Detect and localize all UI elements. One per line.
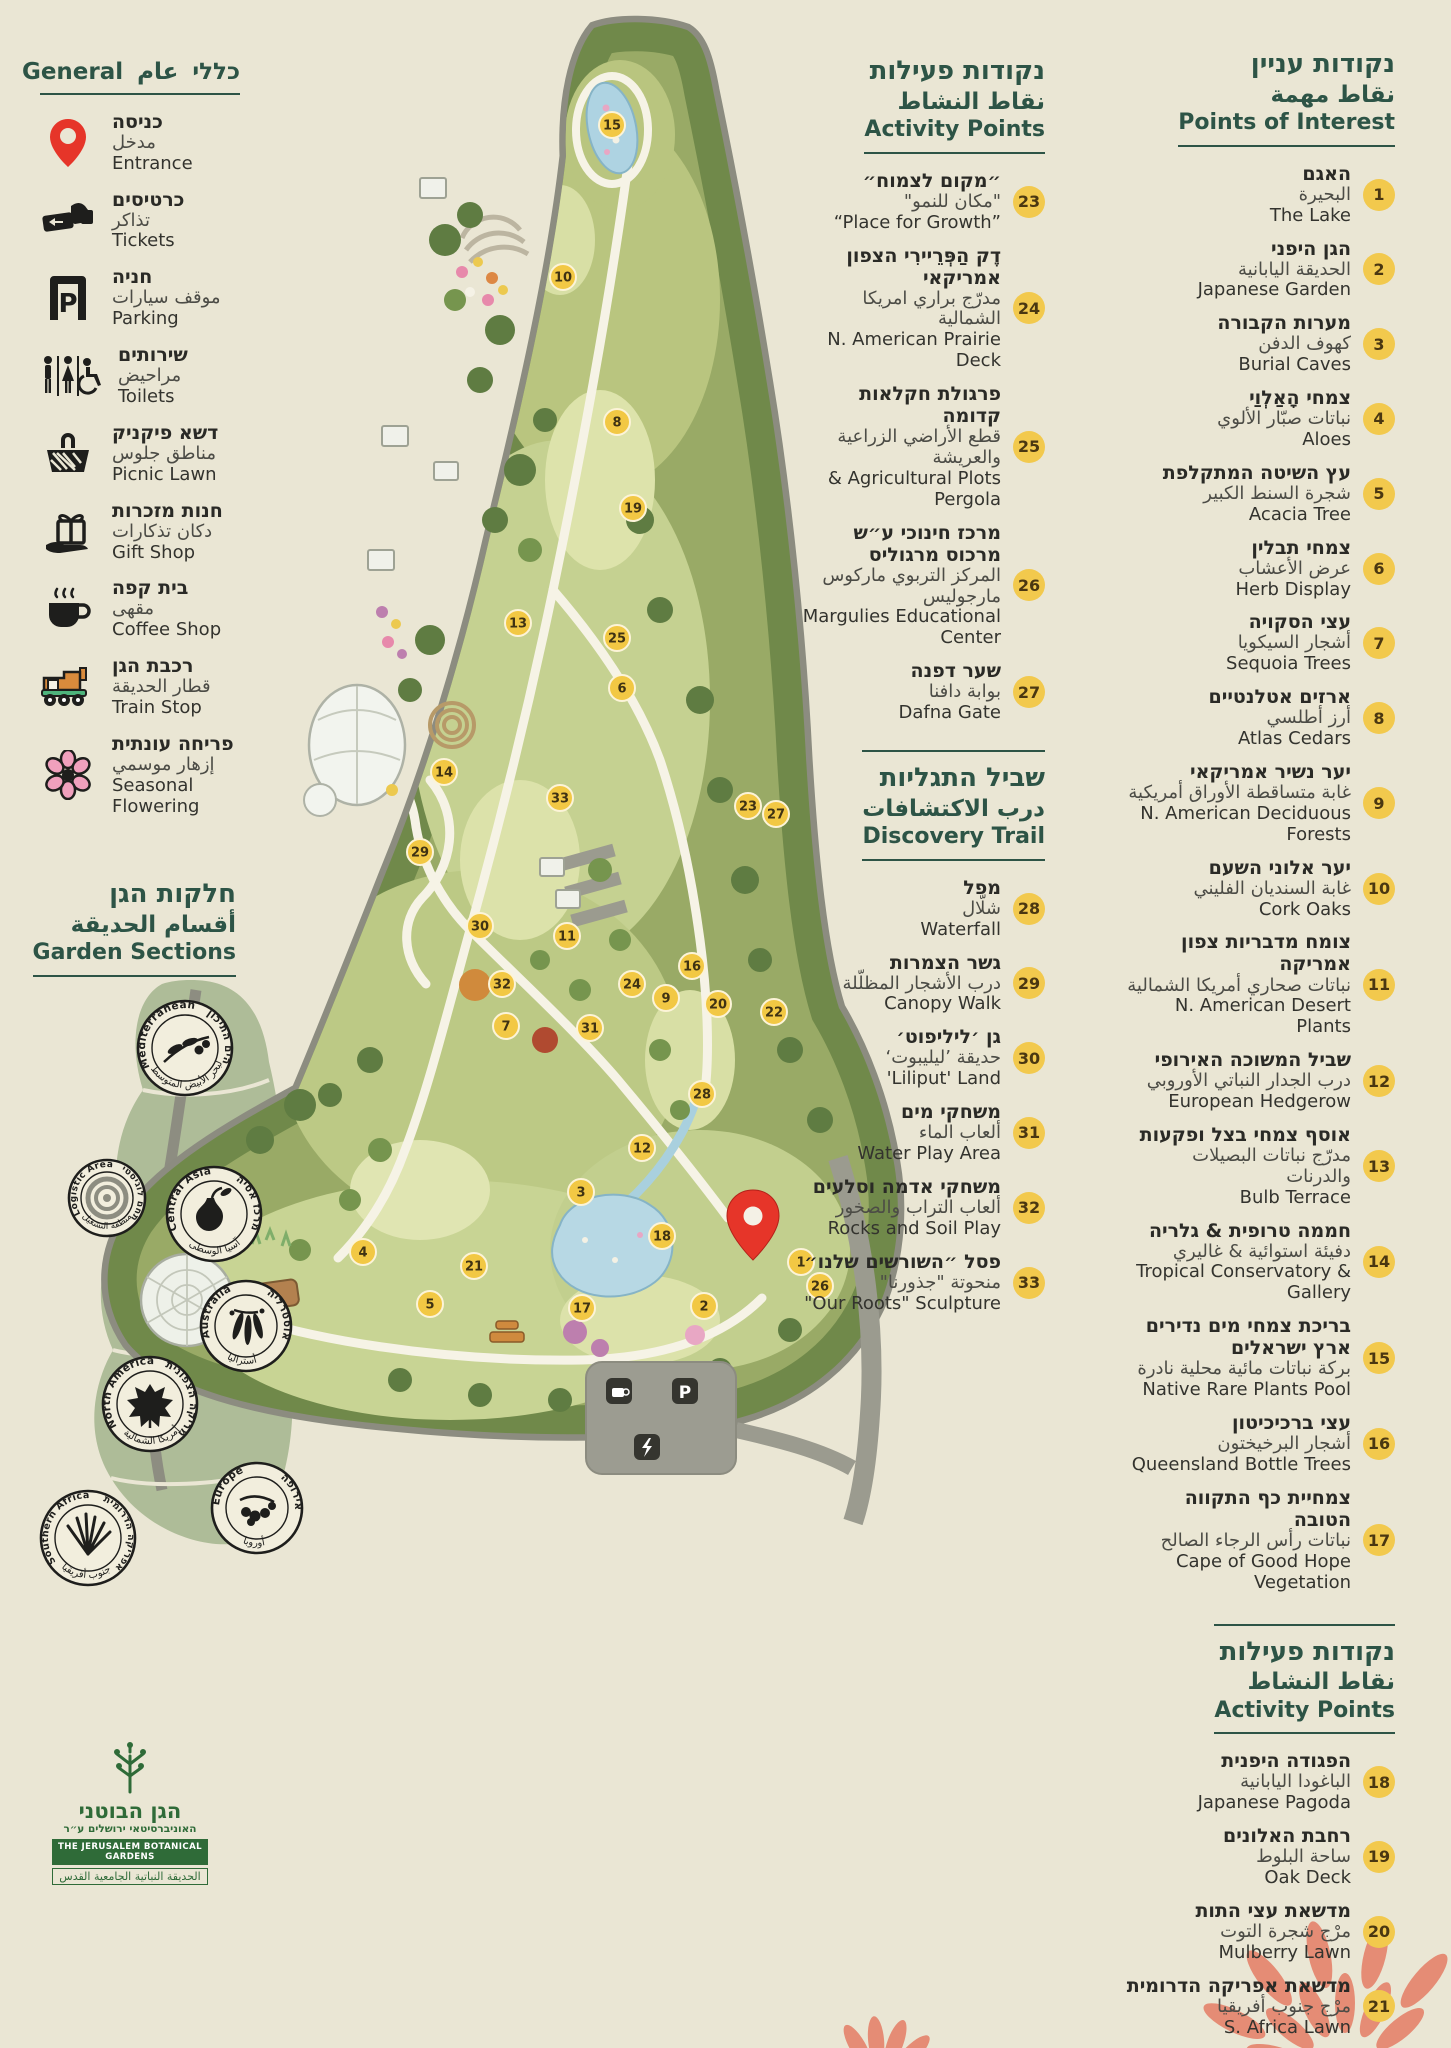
label-arabic: مدرّج نباتات البصيلات والدرنات	[1125, 1146, 1351, 1188]
label-hebrew: חניה	[112, 266, 221, 288]
label-english: N. American Prairie Deck	[795, 330, 1001, 372]
legend-item-text: פרגולת חקלאות קדומה قطع الأراضي الزراعية…	[795, 383, 1001, 511]
label-english: & Agricultural Plots Pergola	[795, 469, 1001, 511]
legend-item: אוסף צמחי בצל ופקעות مدرّج نباتات البصيل…	[1125, 1124, 1395, 1209]
map-marker-number: 11	[558, 930, 576, 945]
label-english: Toilets	[118, 387, 188, 408]
legend-item: צמחי תבלין عرض الأعشاب Herb Display6	[1125, 537, 1395, 601]
label-arabic: دكان تذكارات	[112, 522, 223, 543]
legend-item-text: צמחיית כף התקווה הטובה نباتات رأس الرجاء…	[1125, 1487, 1351, 1594]
label-hebrew: מערות הקבורה	[1217, 312, 1351, 334]
map-marker-number: 27	[767, 808, 785, 823]
item-number-badge: 27	[1013, 676, 1045, 708]
item-number-badge: 18	[1363, 1766, 1395, 1798]
label-arabic: مناطق جلوس	[112, 444, 218, 465]
item-number-badge: 15	[1363, 1342, 1395, 1374]
header-arabic: أقسام الحديقة	[33, 911, 236, 940]
label-arabic: مدخل	[112, 133, 193, 154]
legend-item: מערות הקבורה كهوف الدفن Burial Caves3	[1125, 312, 1395, 376]
section-badge-central-asia: Central Asia מרכז אסיה آسيا الوسطى	[165, 1165, 263, 1261]
label-arabic: المركز التربوي ماركوس مارجوليس	[795, 566, 1001, 608]
legend-item-text: כרטיסים تذاكر Tickets	[112, 189, 184, 253]
legend-item-text: רחבת האלונים ساحة البلوط Oak Deck	[1223, 1825, 1351, 1889]
gift-shop-icon	[40, 509, 96, 555]
label-english: Parking	[112, 309, 221, 330]
legend-item-text: מרכז חינוכי ע״ש מרכוס מרגוליס المركز الت…	[795, 522, 1001, 650]
label-english: Japanese Garden	[1198, 280, 1351, 301]
label-english: Picnic Lawn	[112, 465, 218, 486]
label-arabic: غابة السنديان الفليني	[1193, 879, 1351, 900]
item-number-badge: 7	[1363, 627, 1395, 659]
label-hebrew: בריכת צמחי מים נדירים ארץ ישראלים	[1125, 1315, 1351, 1359]
label-english: Atlas Cedars	[1209, 729, 1351, 750]
label-english: Water Play Area	[857, 1144, 1001, 1165]
label-hebrew: משחקי מים	[857, 1101, 1001, 1123]
entrance-pin-icon	[40, 117, 96, 169]
legend-item: צמחי הָאַלְוַי نباتات صبّار الألوي Aloes…	[1125, 387, 1395, 451]
label-hebrew: חממה טרופית & גלריה	[1125, 1220, 1351, 1242]
legend-item-text: מפל شلّال Waterfall	[920, 877, 1001, 941]
label-english: Cork Oaks	[1193, 900, 1351, 921]
header-hebrew: נקודות פעילות	[1214, 1636, 1395, 1669]
label-arabic: أشجار البرخيختون	[1132, 1434, 1351, 1455]
label-hebrew: עץ השיטה המתקלפת	[1163, 462, 1351, 484]
label-arabic: درب الأشجار المظلّلة	[843, 974, 1001, 995]
svg-text:P: P	[679, 1383, 691, 1403]
legend-item-text: פסל ״השורשים שלנו״ منحوتة "جذورنا" "Our …	[804, 1251, 1001, 1315]
label-hebrew: שער דפנה	[899, 660, 1002, 682]
map-marker-number: 12	[633, 1142, 651, 1157]
legend-item-text: יער אלוני השעם غابة السنديان الفليني Cor…	[1193, 857, 1351, 921]
label-arabic: ألعاب الماء	[857, 1123, 1001, 1144]
legend-item-text: הפגודה היפנית الباغودا اليابانية Japanes…	[1198, 1750, 1351, 1814]
legend-item-text: חניה موقف سيارات Parking	[112, 266, 221, 330]
label-english: Cape of Good Hope Vegetation	[1125, 1552, 1351, 1594]
item-number-badge: 6	[1363, 553, 1395, 585]
label-arabic: إزهار موسمي	[112, 755, 240, 776]
label-hebrew: עצי הסקויה	[1226, 611, 1351, 633]
label-arabic: الباغودا اليابانية	[1198, 1772, 1351, 1793]
legend-item: רחבת האלונים ساحة البلوط Oak Deck19	[1125, 1825, 1395, 1889]
item-number-badge: 23	[1013, 186, 1045, 218]
header-hebrew: נקודות עניין	[1178, 48, 1395, 81]
label-arabic: البحيرة	[1270, 185, 1351, 206]
train-icon	[40, 666, 96, 708]
section-badge-europe: Europe אירופה أوروبا	[210, 1463, 304, 1553]
activity-points-column: נקודות פעילות نقاط النشاط Activity Point…	[795, 55, 1045, 1325]
item-number-badge: 33	[1013, 1267, 1045, 1299]
legend-item: פרגולת חקלאות קדומה قطع الأراضي الزراعية…	[795, 383, 1045, 511]
activity-points-right-header: נקודות פעילות نقاط النشاط Activity Point…	[1214, 1624, 1395, 1735]
label-english: N. American Deciduous Forests	[1125, 804, 1351, 846]
label-english: Queensland Bottle Trees	[1132, 1455, 1351, 1476]
label-english: Sequoia Trees	[1226, 654, 1351, 675]
tickets-icon	[40, 200, 96, 240]
legend-item: שביל המשוכה האירופי درب الجدار النباتي ا…	[1125, 1049, 1395, 1113]
label-english: “Place for Growth”	[834, 213, 1001, 234]
item-number-badge: 24	[1013, 292, 1045, 324]
map-marker-number: 8	[612, 416, 621, 431]
map-marker-number: 30	[471, 920, 489, 935]
map-marker-number: 14	[435, 766, 453, 781]
map-marker-number: 10	[554, 271, 572, 286]
map-marker-number: 6	[617, 682, 626, 697]
label-hebrew: מפל	[920, 877, 1001, 899]
label-english: Tickets	[112, 231, 184, 252]
header-english: Activity Points	[1214, 1697, 1395, 1725]
garden-map-page: P 12345678910111213141516171819202122232…	[0, 0, 1451, 2048]
map-marker-number: 9	[661, 992, 670, 1007]
legend-item: משחקי מים ألعاب الماء Water Play Area31	[795, 1101, 1045, 1165]
label-arabic: ألعاب التراب والصخور	[813, 1198, 1001, 1219]
label-hebrew: מדשאת עצי התות	[1195, 1900, 1351, 1922]
legend-item: האגם البحيرة The Lake1	[1125, 163, 1395, 227]
logo-title-arabic: الحديقة النباتية الجامعية القدس	[52, 1868, 208, 1885]
label-english: Japanese Pagoda	[1198, 1793, 1351, 1814]
logo-subtitle-hebrew: האוניברסיטאי ירושלים ע״ר	[52, 1823, 208, 1836]
legend-item: צומח מדבריות צפון אמריקה نباتات صحاري أم…	[1125, 931, 1395, 1038]
label-arabic: موقف سيارات	[112, 288, 221, 309]
legend-item-text: חממה טרופית & גלריה دفيئة استوائية & غال…	[1125, 1220, 1351, 1305]
header-arabic: نقاط مهمة	[1178, 81, 1395, 110]
map-marker-number: 20	[709, 998, 727, 1013]
label-english: Herb Display	[1235, 580, 1351, 601]
map-marker-number: 25	[608, 632, 626, 647]
label-arabic: شجرة السنط الكبير	[1163, 484, 1351, 505]
legend-item-text: חנות מזכרות دكان تذكارات Gift Shop	[112, 500, 223, 564]
tropical-conservatory	[304, 685, 405, 816]
parking-area: P	[586, 1362, 736, 1474]
label-english: N. American Desert Plants	[1125, 996, 1351, 1038]
label-hebrew: שביל המשוכה האירופי	[1147, 1049, 1351, 1071]
map-marker-number: 22	[765, 1006, 783, 1021]
label-english: Tropical Conservatory & Gallery	[1125, 1262, 1351, 1304]
map-marker-number: 16	[683, 960, 701, 975]
general-legend-item: פריחה עונתית إزهار موسمي Seasonal Flower…	[40, 733, 240, 818]
map-marker-number: 31	[581, 1022, 599, 1037]
item-number-badge: 9	[1363, 787, 1395, 819]
item-number-badge: 25	[1013, 431, 1045, 463]
item-number-badge: 21	[1363, 1990, 1395, 2022]
label-hebrew: משחקי אדמה וסלעים	[813, 1176, 1001, 1198]
label-english: European Hedgerow	[1147, 1092, 1351, 1113]
legend-item: גשר הצמרות درب الأشجار المظلّلة Canopy W…	[795, 952, 1045, 1016]
label-english: Entrance	[112, 154, 193, 175]
label-hebrew: צמחי הָאַלְוַי	[1217, 387, 1351, 409]
label-hebrew: גן ׳ליליפוט׳	[886, 1026, 1002, 1048]
legend-item: פסל ״השורשים שלנו״ منحوتة "جذورنا" "Our …	[795, 1251, 1045, 1315]
label-hebrew: דשא פיקניק	[112, 422, 218, 444]
label-hebrew: גשר הצמרות	[843, 952, 1001, 974]
general-legend-header: כללי عام General	[40, 58, 240, 95]
discovery-trail-header: שביל התגליות درب الاكتشافات Discovery Tr…	[862, 750, 1045, 861]
label-english: Aloes	[1217, 430, 1351, 451]
label-hebrew: כניסה	[112, 111, 193, 133]
legend-item: מדשאת אפריקה הדרומית مرْج جنوب أفريقيا S…	[1125, 1975, 1395, 2039]
header-hebrew: חלקות הגן	[33, 878, 236, 911]
map-marker-number: 19	[624, 502, 642, 517]
label-english: Burial Caves	[1217, 355, 1351, 376]
general-legend-item: דשא פיקניק مناطق جلوس Picnic Lawn	[40, 422, 240, 486]
label-hebrew: שירותים	[118, 344, 188, 366]
label-hebrew: האגם	[1270, 163, 1351, 185]
label-hebrew: רכבת הגן	[112, 655, 211, 677]
label-hebrew: ״מקום לצמוח״	[834, 170, 1001, 192]
map-marker-number: 21	[465, 1260, 483, 1275]
header-arabic: عام	[137, 58, 178, 87]
label-arabic: تذاكر	[112, 211, 184, 232]
legend-item-text: צמחי תבלין عرض الأعشاب Herb Display	[1235, 537, 1351, 601]
item-number-badge: 32	[1013, 1192, 1045, 1224]
legend-item: משחקי אדמה וסלעים ألعاب التراب والصخور R…	[795, 1176, 1045, 1240]
legend-item: ארזים אטלנטיים أرز أطلسي Atlas Cedars8	[1125, 686, 1395, 750]
label-arabic: قطع الأراضي الزراعية والعريشة	[795, 427, 1001, 469]
legend-item: יער נשיר אמריקאי غابة متساقطة الأوراق أم…	[1125, 761, 1395, 846]
label-hebrew: הפגודה היפנית	[1198, 1750, 1351, 1772]
legend-item: ״מקום לצמוח״ "مكان للنمو" “Place for Gro…	[795, 170, 1045, 234]
label-hebrew: פרגולת חקלאות קדומה	[795, 383, 1001, 427]
legend-item-text: שביל המשוכה האירופי درب الجدار النباتي ا…	[1147, 1049, 1351, 1113]
legend-item-text: שער דפנה بوابة دافنا Dafna Gate	[899, 660, 1002, 724]
map-marker-number: 3	[576, 1186, 585, 1201]
label-english: Gift Shop	[112, 543, 223, 564]
label-english: Rocks and Soil Play	[813, 1219, 1001, 1240]
legend-item: מפל شلّال Waterfall28	[795, 877, 1045, 941]
label-arabic: بركة نباتات مائية محلية نادرة	[1125, 1359, 1351, 1380]
points-of-interest-header: נקודות עניין نقاط مهمة Points of Interes…	[1178, 48, 1395, 147]
item-number-badge: 4	[1363, 403, 1395, 435]
label-english: Oak Deck	[1223, 1868, 1351, 1889]
label-hebrew: צומח מדבריות צפון אמריקה	[1125, 931, 1351, 975]
label-hebrew: דֶק הַפְּרֵיירִי הצפון אמריקאי	[795, 245, 1001, 289]
label-hebrew: כרטיסים	[112, 189, 184, 211]
legend-item: הפגודה היפנית الباغودا اليابانية Japanes…	[1125, 1750, 1395, 1814]
header-hebrew: כללי	[192, 58, 240, 87]
activity-points-header: נקודות פעילות نقاط النشاط Activity Point…	[864, 55, 1045, 154]
map-marker-number: 4	[358, 1246, 367, 1261]
header-hebrew: נקודות פעילות	[864, 55, 1045, 88]
picnic-basket-icon	[40, 432, 96, 476]
label-hebrew: אוסף צמחי בצל ופקעות	[1125, 1124, 1351, 1146]
map-marker-number: 5	[425, 1298, 434, 1313]
label-hebrew: מדשאת אפריקה הדרומית	[1127, 1975, 1351, 1997]
item-number-badge: 16	[1363, 1428, 1395, 1460]
coffee-map-icon	[606, 1378, 632, 1404]
header-english: Discovery Trail	[862, 823, 1045, 851]
header-english: Points of Interest	[1178, 109, 1395, 137]
general-legend-item: שירותים مراحيض Toilets	[40, 344, 240, 408]
map-marker-number: 13	[509, 617, 527, 632]
map-marker-number: 18	[653, 1230, 671, 1245]
legend-item: גן ׳ליליפוט׳ حديقة ’ليليبوت‘ 'Liliput' L…	[795, 1026, 1045, 1090]
legend-item-text: יער נשיר אמריקאי غابة متساقطة الأوراق أم…	[1125, 761, 1351, 846]
map-marker-number: 32	[493, 978, 511, 993]
label-english: Coffee Shop	[112, 620, 221, 641]
label-arabic: نباتات رأس الرجاء الصالح	[1125, 1531, 1351, 1552]
item-number-badge: 8	[1363, 702, 1395, 734]
legend-item-text: מדשאת אפריקה הדרומית مرْج جنوب أفريقيا S…	[1127, 1975, 1351, 2039]
legend-item-text: עצי ברכיכיטון أشجار البرخيختون Queenslan…	[1132, 1412, 1351, 1476]
label-english: Dafna Gate	[899, 703, 1002, 724]
legend-item: עצי הסקויה أشجار السيكويا Sequoia Trees7	[1125, 611, 1395, 675]
general-legend-item: חנות מזכרות دكان تذكارات Gift Shop	[40, 500, 240, 564]
label-arabic: مرْج شجرة التوت	[1195, 1922, 1351, 1943]
label-hebrew: חנות מזכרות	[112, 500, 223, 522]
item-number-badge: 30	[1013, 1042, 1045, 1074]
legend-item-text: משחקי מים ألعاب الماء Water Play Area	[857, 1101, 1001, 1165]
legend-item: מדשאת עצי התות مرْج شجرة التوت Mulberry …	[1125, 1900, 1395, 1964]
map-marker-number: 2	[699, 1300, 708, 1315]
garden-sections-header: חלקות הגן أقسام الحديقة Garden Sections	[30, 878, 236, 977]
label-english: Mulberry Lawn	[1195, 1943, 1351, 1964]
legend-item-text: עץ השיטה המתקלפת شجرة السنط الكبير Acaci…	[1163, 462, 1351, 526]
general-legend-item: P חניה موقف سيارات Parking	[40, 266, 240, 330]
label-english: Train Stop	[112, 698, 211, 719]
toilets-icon	[40, 354, 102, 398]
map-marker-number: 28	[693, 1088, 711, 1103]
logo-title-english: THE JERUSALEM BOTANICAL GARDENS	[52, 1839, 208, 1865]
label-arabic: بوابة دافنا	[899, 682, 1002, 703]
legend-item: יער אלוני השעם غابة السنديان الفليني Cor…	[1125, 857, 1395, 921]
label-english: "Our Roots" Sculpture	[804, 1294, 1001, 1315]
legend-item-text: גן ׳ליליפוט׳ حديقة ’ليليبوت‘ 'Liliput' L…	[886, 1026, 1002, 1090]
item-number-badge: 1	[1363, 179, 1395, 211]
map-marker-number: 29	[411, 846, 429, 861]
header-english: Garden Sections	[33, 939, 236, 967]
label-english: S. Africa Lawn	[1127, 2018, 1351, 2039]
map-marker-number: 24	[623, 978, 641, 993]
item-number-badge: 5	[1363, 478, 1395, 510]
map-marker-number: 33	[551, 792, 569, 807]
label-english: Canopy Walk	[843, 994, 1001, 1015]
section-badge-southern-africa: Southern Africa אפריקה הדרומית جنوب أفري…	[40, 1490, 136, 1585]
label-hebrew: יער אלוני השעם	[1193, 857, 1351, 879]
flower-icon	[40, 750, 96, 800]
label-english: Margulies Educational Center	[795, 607, 1001, 649]
legend-item: בריכת צמחי מים נדירים ארץ ישראלים بركة ن…	[1125, 1315, 1395, 1401]
label-english: Native Rare Plants Pool	[1125, 1380, 1351, 1401]
label-arabic: مراحيض	[118, 366, 188, 387]
item-number-badge: 3	[1363, 328, 1395, 360]
legend-item-text: שירותים مراحيض Toilets	[118, 344, 188, 408]
label-english: Waterfall	[920, 920, 1001, 941]
label-hebrew: רחבת האלונים	[1223, 1825, 1351, 1847]
label-arabic: "مكان للنمو"	[834, 192, 1001, 213]
points-of-interest-column: נקודות עניין نقاط مهمة Points of Interes…	[1125, 48, 1395, 2048]
label-arabic: شلّال	[920, 899, 1001, 920]
legend-item-text: צומח מדבריות צפון אמריקה نباتات صحاري أم…	[1125, 931, 1351, 1038]
label-hebrew: צמחיית כף התקווה הטובה	[1125, 1487, 1351, 1531]
header-hebrew: שביל התגליות	[862, 762, 1045, 795]
legend-item: מרכז חינוכי ע״ש מרכוס מרגוליס المركز الت…	[795, 522, 1045, 650]
header-arabic: درب الاكتشافات	[862, 795, 1045, 824]
label-hebrew: ארזים אטלנטיים	[1209, 686, 1351, 708]
header-english: Activity Points	[864, 116, 1045, 144]
legend-item-text: כניסה مدخل Entrance	[112, 111, 193, 175]
label-hebrew: הגן היפני	[1198, 238, 1351, 260]
item-number-badge: 26	[1013, 569, 1045, 601]
legend-item: הגן היפני الحديقة اليابانية Japanese Gar…	[1125, 238, 1395, 302]
label-arabic: مقهى	[112, 599, 221, 620]
general-legend: כללי عام General כניסה مدخل Entrance כרט…	[40, 58, 240, 832]
label-arabic: نباتات صحاري أمريكا الشمالية	[1125, 976, 1351, 997]
label-arabic: أشجار السيكويا	[1226, 633, 1351, 654]
label-arabic: أرز أطلسي	[1209, 708, 1351, 729]
label-arabic: درب الجدار النباتي الأوروبي	[1147, 1071, 1351, 1092]
label-arabic: نباتات صبّار الألوي	[1217, 409, 1351, 430]
legend-item-text: רכבת הגן قطار الحديقة Train Stop	[112, 655, 211, 719]
legend-item-text: אוסף צמחי בצל ופקעות مدرّج نباتات البصيل…	[1125, 1124, 1351, 1209]
label-english: Bulb Terrace	[1125, 1188, 1351, 1209]
legend-item-text: הגן היפני الحديقة اليابانية Japanese Gar…	[1198, 238, 1351, 302]
label-hebrew: פריחה עונתית	[112, 733, 240, 755]
general-legend-item: כרטיסים تذاكر Tickets	[40, 189, 240, 253]
header-english: General	[22, 58, 123, 87]
legend-item: צמחיית כף התקווה הטובה نباتات رأس الرجاء…	[1125, 1487, 1395, 1594]
legend-item-text: ״מקום לצמוח״ "مكان للنمو" “Place for Gro…	[834, 170, 1001, 234]
label-arabic: مدرّج براري امريكا الشمالية	[795, 289, 1001, 331]
map-marker-number: 23	[739, 800, 757, 815]
label-arabic: عرض الأعشاب	[1235, 559, 1351, 580]
item-number-badge: 14	[1363, 1246, 1395, 1278]
label-arabic: الحديقة اليابانية	[1198, 260, 1351, 281]
map-marker-number: 15	[603, 119, 621, 134]
legend-item: עץ השיטה המתקלפת شجرة السنط الكبير Acaci…	[1125, 462, 1395, 526]
legend-item-text: דֶק הַפְּרֵיירִי הצפון אמריקאי مدرّج برا…	[795, 245, 1001, 373]
label-arabic: مرْج جنوب أفريقيا	[1127, 1997, 1351, 2018]
label-english: 'Liliput' Land	[886, 1069, 1002, 1090]
botanical-gardens-logo: הגן הבוטני האוניברסיטאי ירושלים ע״ר THE …	[52, 1742, 208, 1885]
legend-item-text: עצי הסקויה أشجار السيكويا Sequoia Trees	[1226, 611, 1351, 675]
logo-tree-icon	[52, 1742, 208, 1798]
item-number-badge: 29	[1013, 967, 1045, 999]
label-hebrew: יער נשיר אמריקאי	[1125, 761, 1351, 783]
item-number-badge: 20	[1363, 1916, 1395, 1948]
parking-icon: P	[40, 274, 96, 322]
label-hebrew: פסל ״השורשים שלנו״	[804, 1251, 1001, 1273]
ev-charging-icon	[634, 1434, 660, 1460]
legend-item-text: גשר הצמרות درب الأشجار المظلّلة Canopy W…	[843, 952, 1001, 1016]
legend-item: עצי ברכיכיטון أشجار البرخيختون Queenslan…	[1125, 1412, 1395, 1476]
label-hebrew: עצי ברכיכיטון	[1132, 1412, 1351, 1434]
parking-map-icon: P	[672, 1378, 698, 1404]
legend-item-text: דשא פיקניק مناطق جلوس Picnic Lawn	[112, 422, 218, 486]
legend-item: דֶק הַפְּרֵיירִי הצפון אמריקאי مدرّج برا…	[795, 245, 1045, 373]
label-arabic: حديقة ’ليليبوت‘	[886, 1048, 1002, 1069]
legend-item-text: מדשאת עצי התות مرْج شجرة التوت Mulberry …	[1195, 1900, 1351, 1964]
label-arabic: كهوف الدفن	[1217, 334, 1351, 355]
label-arabic: منحوتة "جذورنا"	[804, 1273, 1001, 1294]
label-hebrew: בית קפה	[112, 577, 221, 599]
svg-text:P: P	[58, 289, 77, 319]
item-number-badge: 13	[1363, 1150, 1395, 1182]
legend-item-text: פריחה עונתית إزهار موسمي Seasonal Flower…	[112, 733, 240, 818]
general-legend-item: כניסה مدخل Entrance	[40, 111, 240, 175]
general-legend-item: רכבת הגן قطار الحديقة Train Stop	[40, 655, 240, 719]
legend-item-text: ארזים אטלנטיים أرز أطلسي Atlas Cedars	[1209, 686, 1351, 750]
label-arabic: ساحة البلوط	[1223, 1847, 1351, 1868]
header-arabic: نقاط النشاط	[1214, 1668, 1395, 1697]
label-english: Acacia Tree	[1163, 505, 1351, 526]
section-badge-australia: Australia אוסטרליה أستراليا	[199, 1281, 293, 1371]
item-number-badge: 12	[1363, 1065, 1395, 1097]
map-marker-number: 7	[501, 1020, 510, 1035]
legend-item-text: מערות הקבורה كهوف الدفن Burial Caves	[1217, 312, 1351, 376]
map-marker-number: 17	[573, 1302, 591, 1317]
label-english: Seasonal Flowering	[112, 776, 240, 818]
item-number-badge: 19	[1363, 1841, 1395, 1873]
legend-item: חממה טרופית & גלריה دفيئة استوائية & غال…	[1125, 1220, 1395, 1305]
